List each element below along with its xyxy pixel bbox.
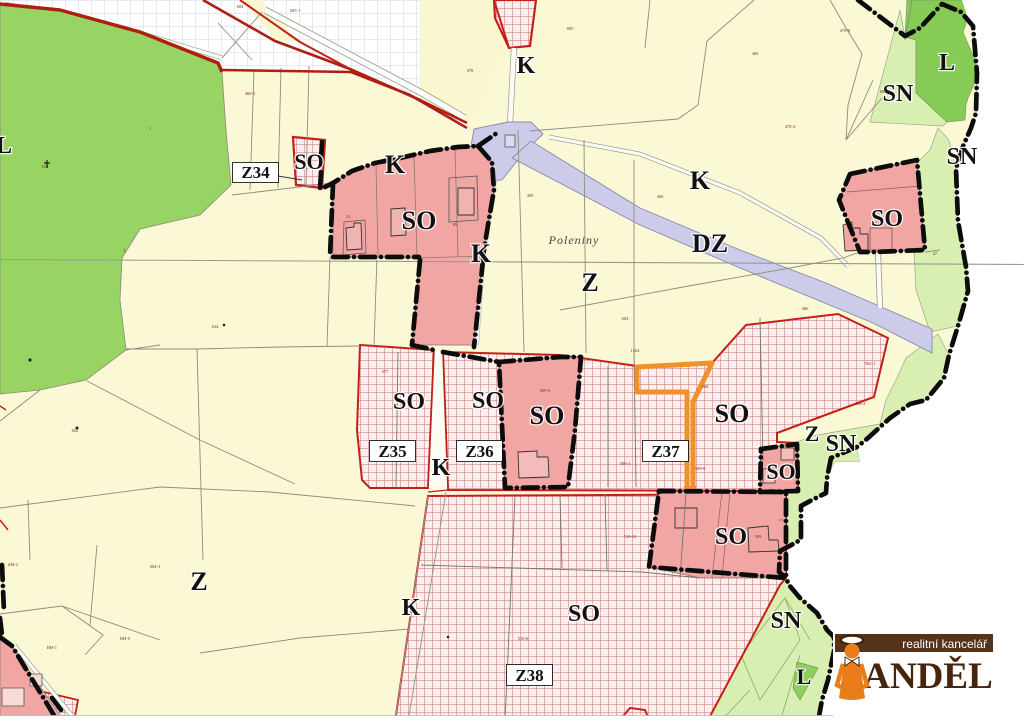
svg-text:SM-2: SM-2 <box>8 562 18 567</box>
svg-text:Z36: Z36 <box>465 442 493 461</box>
svg-text:468: 468 <box>752 51 760 56</box>
svg-text:634: 634 <box>42 164 50 169</box>
svg-text:realitní kancelář: realitní kancelář <box>902 637 988 651</box>
svg-text:478-4: 478-4 <box>785 124 796 129</box>
svg-text:Z: Z <box>190 567 207 596</box>
svg-text:L: L <box>939 50 955 76</box>
svg-text:Poleniny: Poleniny <box>548 233 600 247</box>
svg-text:SN: SN <box>826 431 857 457</box>
svg-text:Z34: Z34 <box>241 163 270 182</box>
svg-text:1: 1 <box>149 126 151 131</box>
svg-text:SO: SO <box>715 399 750 428</box>
svg-text:DZ: DZ <box>692 229 728 258</box>
svg-text:466-2: 466-2 <box>855 401 866 406</box>
svg-text:BH-5: BH-5 <box>120 636 131 641</box>
svg-text:602: 602 <box>72 428 79 433</box>
svg-text:634: 634 <box>212 324 220 329</box>
svg-text:466: 466 <box>802 306 810 311</box>
svg-text:K: K <box>517 53 536 79</box>
svg-text:Z38: Z38 <box>515 666 543 685</box>
svg-text:506: 506 <box>702 384 710 389</box>
svg-text:ANDĚL: ANDĚL <box>863 655 993 697</box>
svg-text:SN: SN <box>883 81 914 107</box>
svg-text:K: K <box>432 455 451 481</box>
svg-text:SO: SO <box>715 524 747 550</box>
svg-text:478: 478 <box>467 68 475 73</box>
svg-text:510-6: 510-6 <box>518 636 529 641</box>
svg-text:502-1: 502-1 <box>865 361 876 366</box>
svg-text:K: K <box>690 166 711 195</box>
svg-text:509: 509 <box>755 534 763 539</box>
svg-text:L: L <box>0 133 12 159</box>
svg-text:Z: Z <box>581 268 598 297</box>
svg-text:K: K <box>402 595 421 621</box>
svg-text:604: 604 <box>622 316 630 321</box>
svg-text:L: L <box>124 248 127 253</box>
svg-text:K: K <box>385 150 406 179</box>
svg-text:688-1: 688-1 <box>880 89 891 94</box>
svg-text:684: 684 <box>237 4 245 9</box>
svg-text:Z35: Z35 <box>378 442 406 461</box>
svg-text:685: 685 <box>567 26 575 31</box>
svg-text:468-1: 468-1 <box>245 91 256 96</box>
svg-text:SO: SO <box>568 601 600 627</box>
svg-text:509-6: 509-6 <box>695 466 706 471</box>
svg-text:BH-1: BH-1 <box>47 645 57 650</box>
svg-text:89: 89 <box>453 222 458 227</box>
svg-text:SN: SN <box>947 144 978 170</box>
svg-text:509-4: 509-4 <box>620 461 631 466</box>
svg-text:23: 23 <box>346 214 351 219</box>
svg-text:SO: SO <box>766 459 795 484</box>
svg-text:Z: Z <box>805 421 820 446</box>
svg-text:SN: SN <box>771 608 802 634</box>
svg-text:SO: SO <box>472 388 504 414</box>
svg-text:377: 377 <box>382 369 390 374</box>
svg-text:460: 460 <box>657 194 665 199</box>
svg-text:478-8: 478-8 <box>840 28 851 33</box>
svg-text:K: K <box>471 239 492 268</box>
svg-text:604-3: 604-3 <box>150 564 161 569</box>
svg-text:509-5: 509-5 <box>540 388 551 393</box>
svg-text:Z37: Z37 <box>651 442 680 461</box>
svg-text:510-10: 510-10 <box>624 534 637 539</box>
svg-text:1264: 1264 <box>631 348 641 353</box>
svg-text:685-1: 685-1 <box>290 8 301 13</box>
svg-text:SO: SO <box>294 149 323 174</box>
svg-text:459: 459 <box>527 193 535 198</box>
svg-text:SO: SO <box>530 401 565 430</box>
svg-text:47: 47 <box>933 251 938 256</box>
svg-text:SO: SO <box>393 389 425 415</box>
svg-text:SO: SO <box>871 206 903 232</box>
svg-text:SO: SO <box>402 206 437 235</box>
svg-text:L: L <box>797 664 812 689</box>
